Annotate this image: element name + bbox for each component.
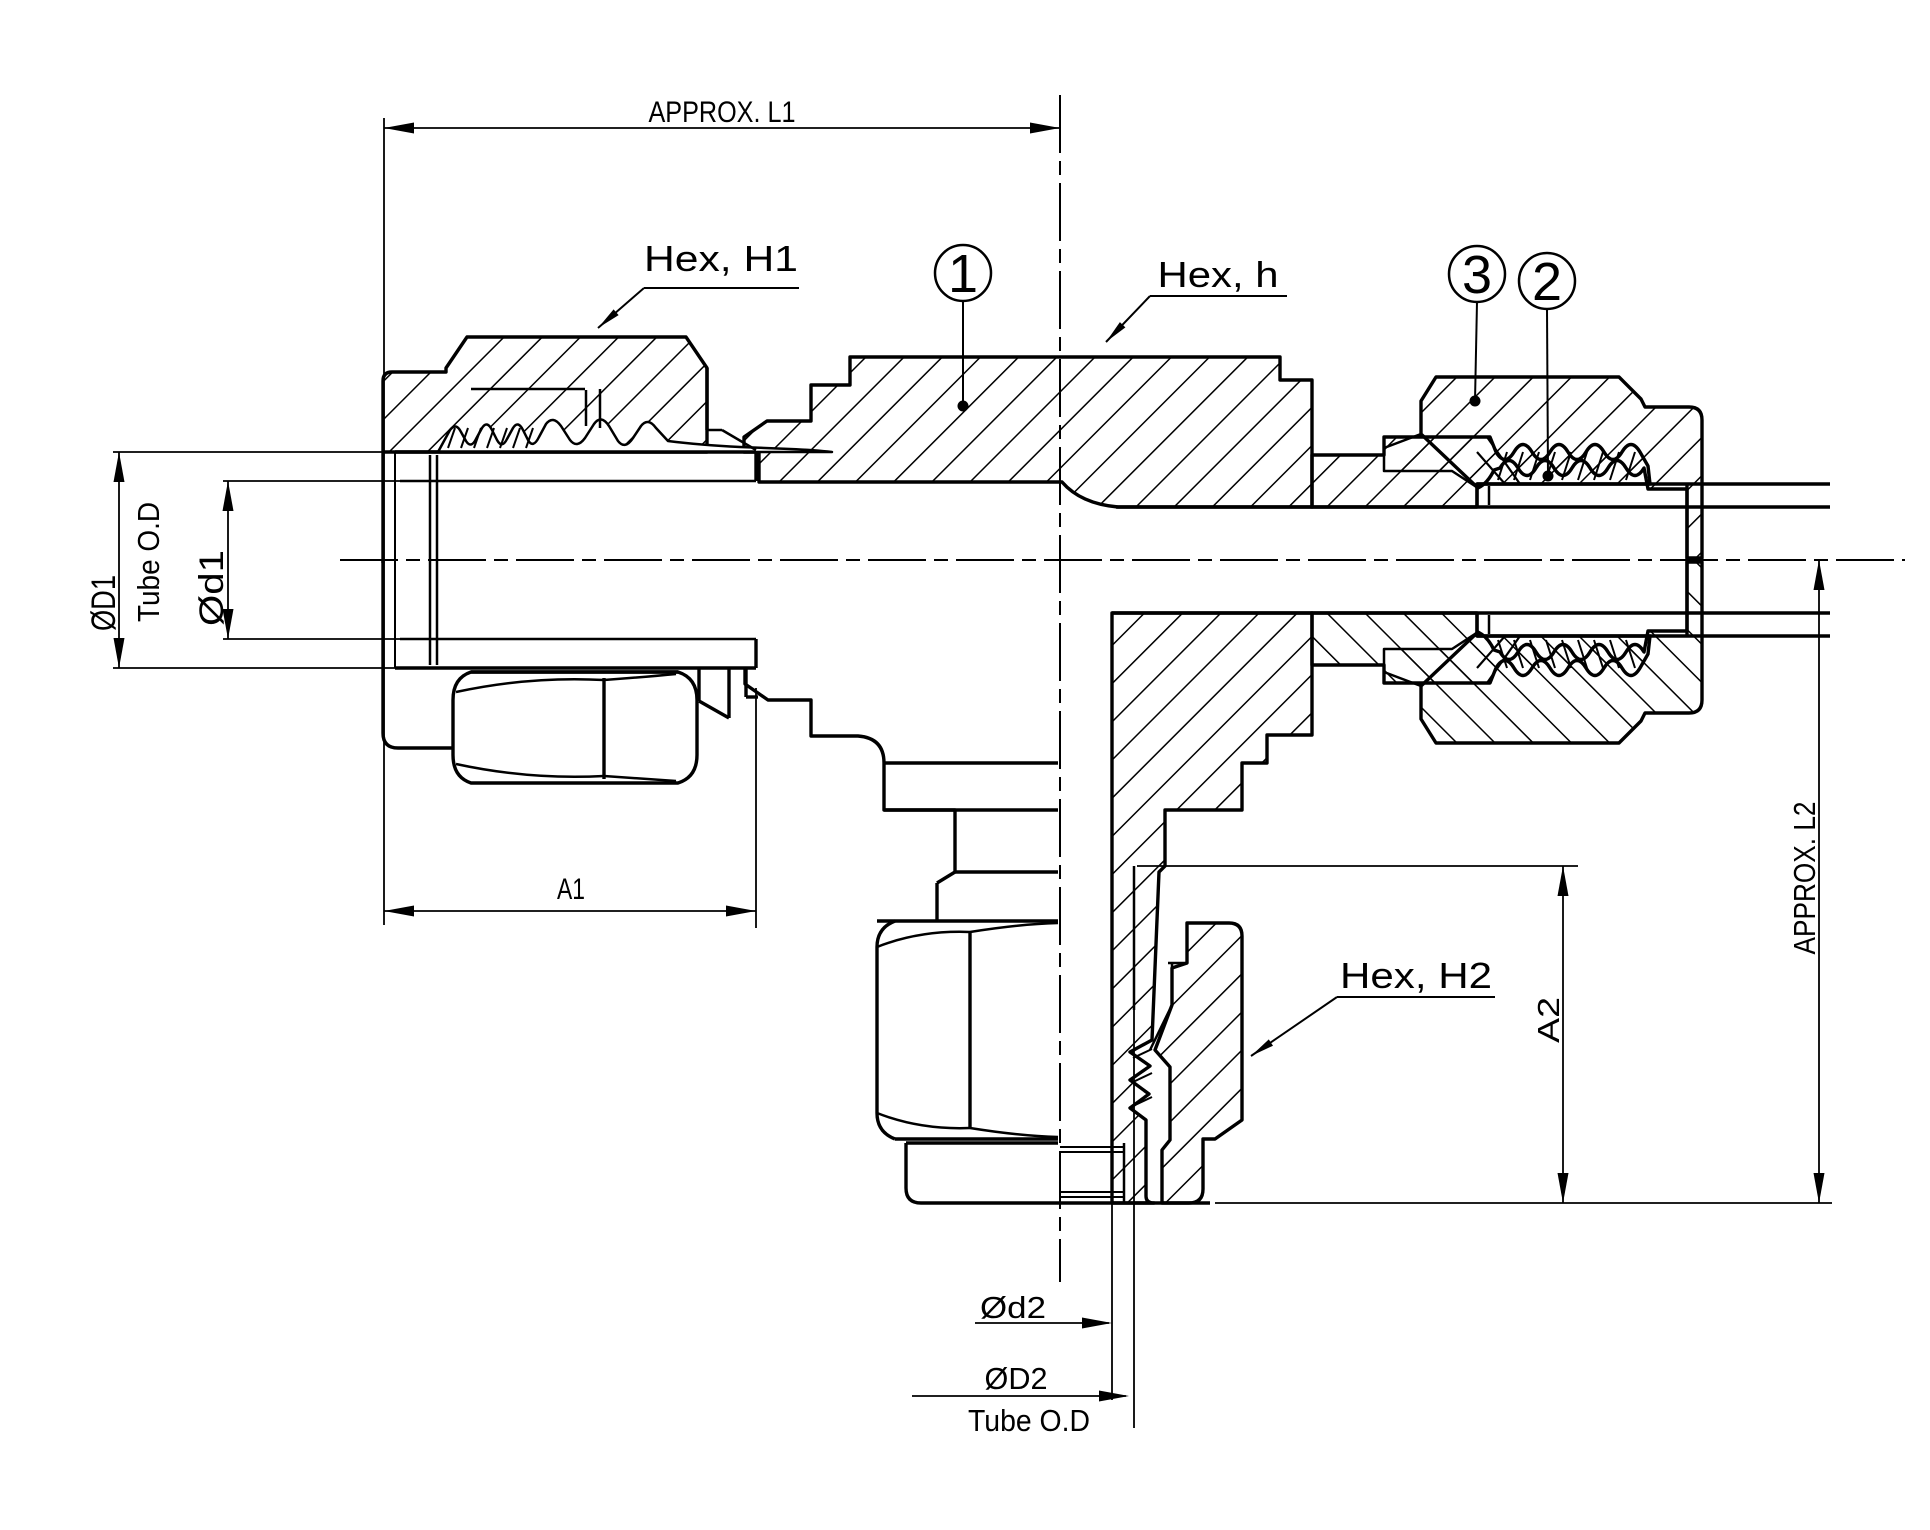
svg-text:APPROX. L2: APPROX. L2	[1787, 802, 1822, 955]
svg-text:ØD1: ØD1	[85, 575, 123, 631]
svg-text:3: 3	[1462, 245, 1492, 305]
svg-text:Hex, H1: Hex, H1	[644, 238, 798, 279]
svg-text:Ød1: Ød1	[193, 550, 231, 626]
svg-text:A2: A2	[1531, 997, 1566, 1043]
svg-text:Hex, H2: Hex, H2	[1340, 955, 1492, 996]
svg-text:ØD2: ØD2	[985, 1361, 1048, 1396]
svg-text:1: 1	[948, 244, 978, 304]
svg-text:2: 2	[1532, 252, 1562, 312]
svg-text:APPROX. L1: APPROX. L1	[649, 96, 796, 129]
svg-text:Tube O.D: Tube O.D	[131, 502, 166, 622]
svg-text:A1: A1	[557, 873, 585, 906]
svg-text:Hex, h: Hex, h	[1158, 254, 1279, 295]
svg-text:Ød2: Ød2	[980, 1290, 1046, 1325]
svg-text:Tube O.D: Tube O.D	[968, 1403, 1090, 1438]
